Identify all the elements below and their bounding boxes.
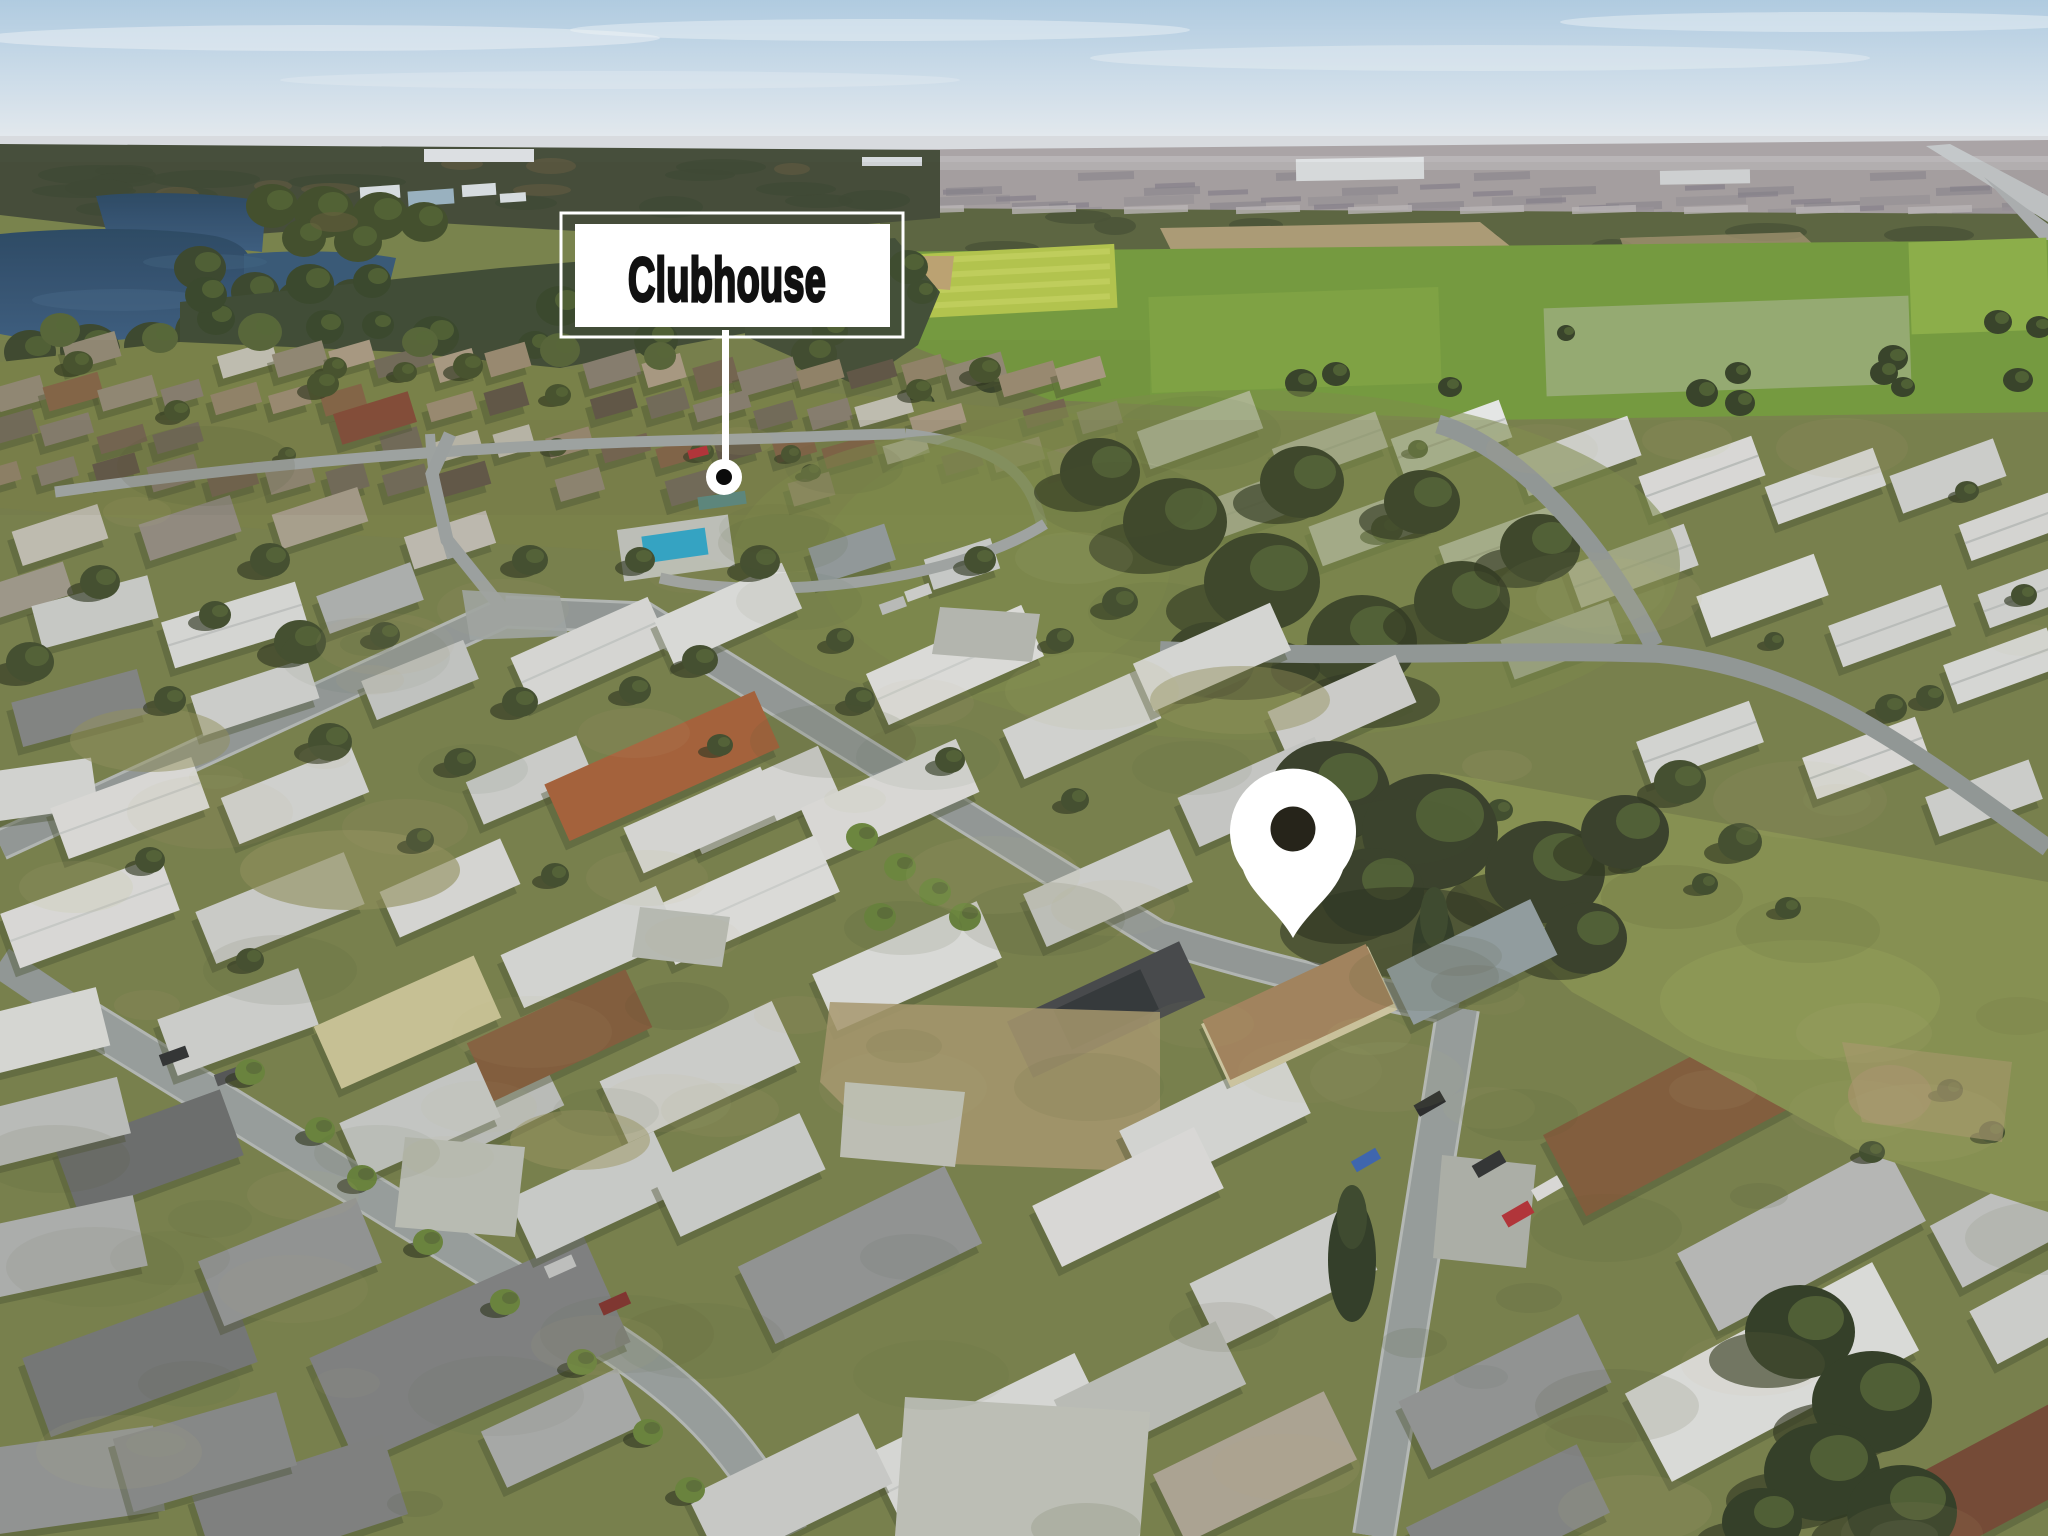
svg-text:Clubhouse: Clubhouse [628,245,826,314]
